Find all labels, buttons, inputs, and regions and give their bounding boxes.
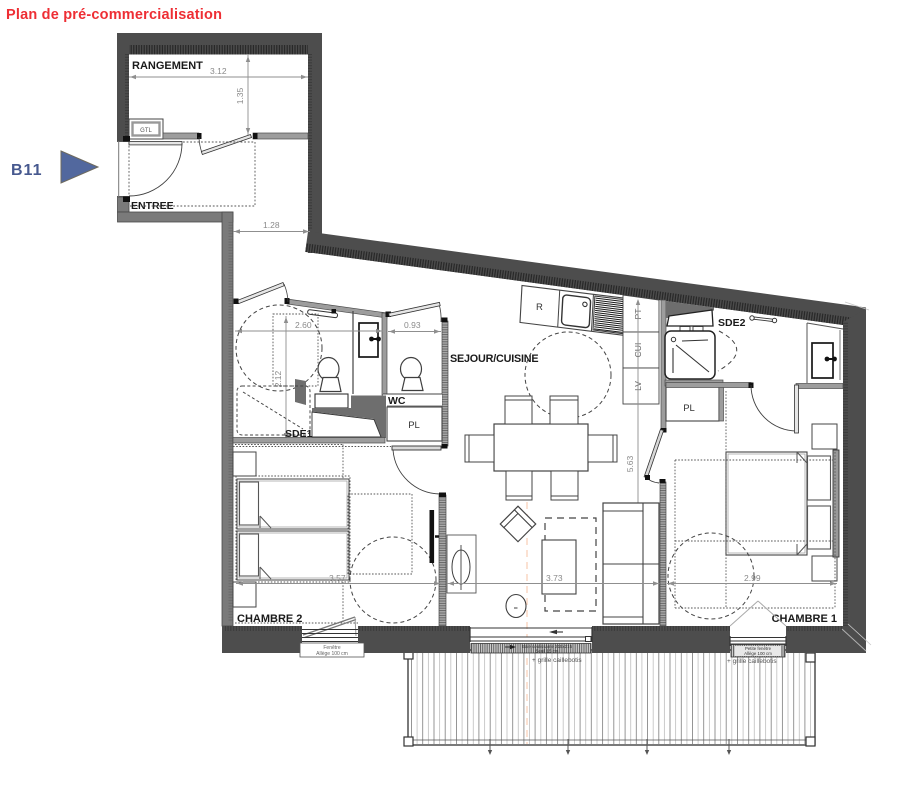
- svg-text:B11: B11: [11, 162, 42, 179]
- svg-text:R: R: [536, 302, 543, 313]
- svg-text:RANGEMENT: RANGEMENT: [132, 60, 203, 72]
- svg-text:3.73: 3.73: [546, 573, 563, 583]
- svg-text:1.35: 1.35: [235, 87, 245, 104]
- svg-text:Allège 100 cm: Allège 100 cm: [316, 651, 348, 657]
- svg-text:WC: WC: [388, 395, 406, 407]
- svg-text:2.12: 2.12: [273, 370, 283, 387]
- svg-text:PL: PL: [408, 420, 420, 431]
- svg-text:SDE2: SDE2: [718, 317, 746, 329]
- svg-text:PL: PL: [683, 403, 695, 414]
- svg-text:Allège 100 cm: Allège 100 cm: [744, 651, 772, 656]
- svg-text:3.57: 3.57: [329, 573, 346, 583]
- svg-text:CHAMBRE 2: CHAMBRE 2: [237, 613, 302, 625]
- svg-text:3.12: 3.12: [210, 66, 227, 76]
- svg-text:+ grille caillebotis: + grille caillebotis: [532, 657, 582, 664]
- svg-text:1.28: 1.28: [263, 220, 280, 230]
- svg-text:CHAMBRE 1: CHAMBRE 1: [772, 613, 837, 625]
- svg-text:SEJOUR/CUISINE: SEJOUR/CUISINE: [450, 353, 538, 365]
- svg-text:0.93: 0.93: [404, 320, 421, 330]
- svg-text:GTL: GTL: [140, 128, 152, 134]
- svg-text:Seuil 15 cm: Seuil 15 cm: [536, 649, 559, 654]
- svg-text:+ grille caillebotis: + grille caillebotis: [727, 658, 777, 665]
- svg-text:2.99: 2.99: [744, 573, 761, 583]
- svg-text:2.60: 2.60: [295, 320, 312, 330]
- svg-text:5.63: 5.63: [625, 455, 635, 472]
- svg-text:Plan de pré-commercialisation: Plan de pré-commercialisation: [6, 7, 222, 23]
